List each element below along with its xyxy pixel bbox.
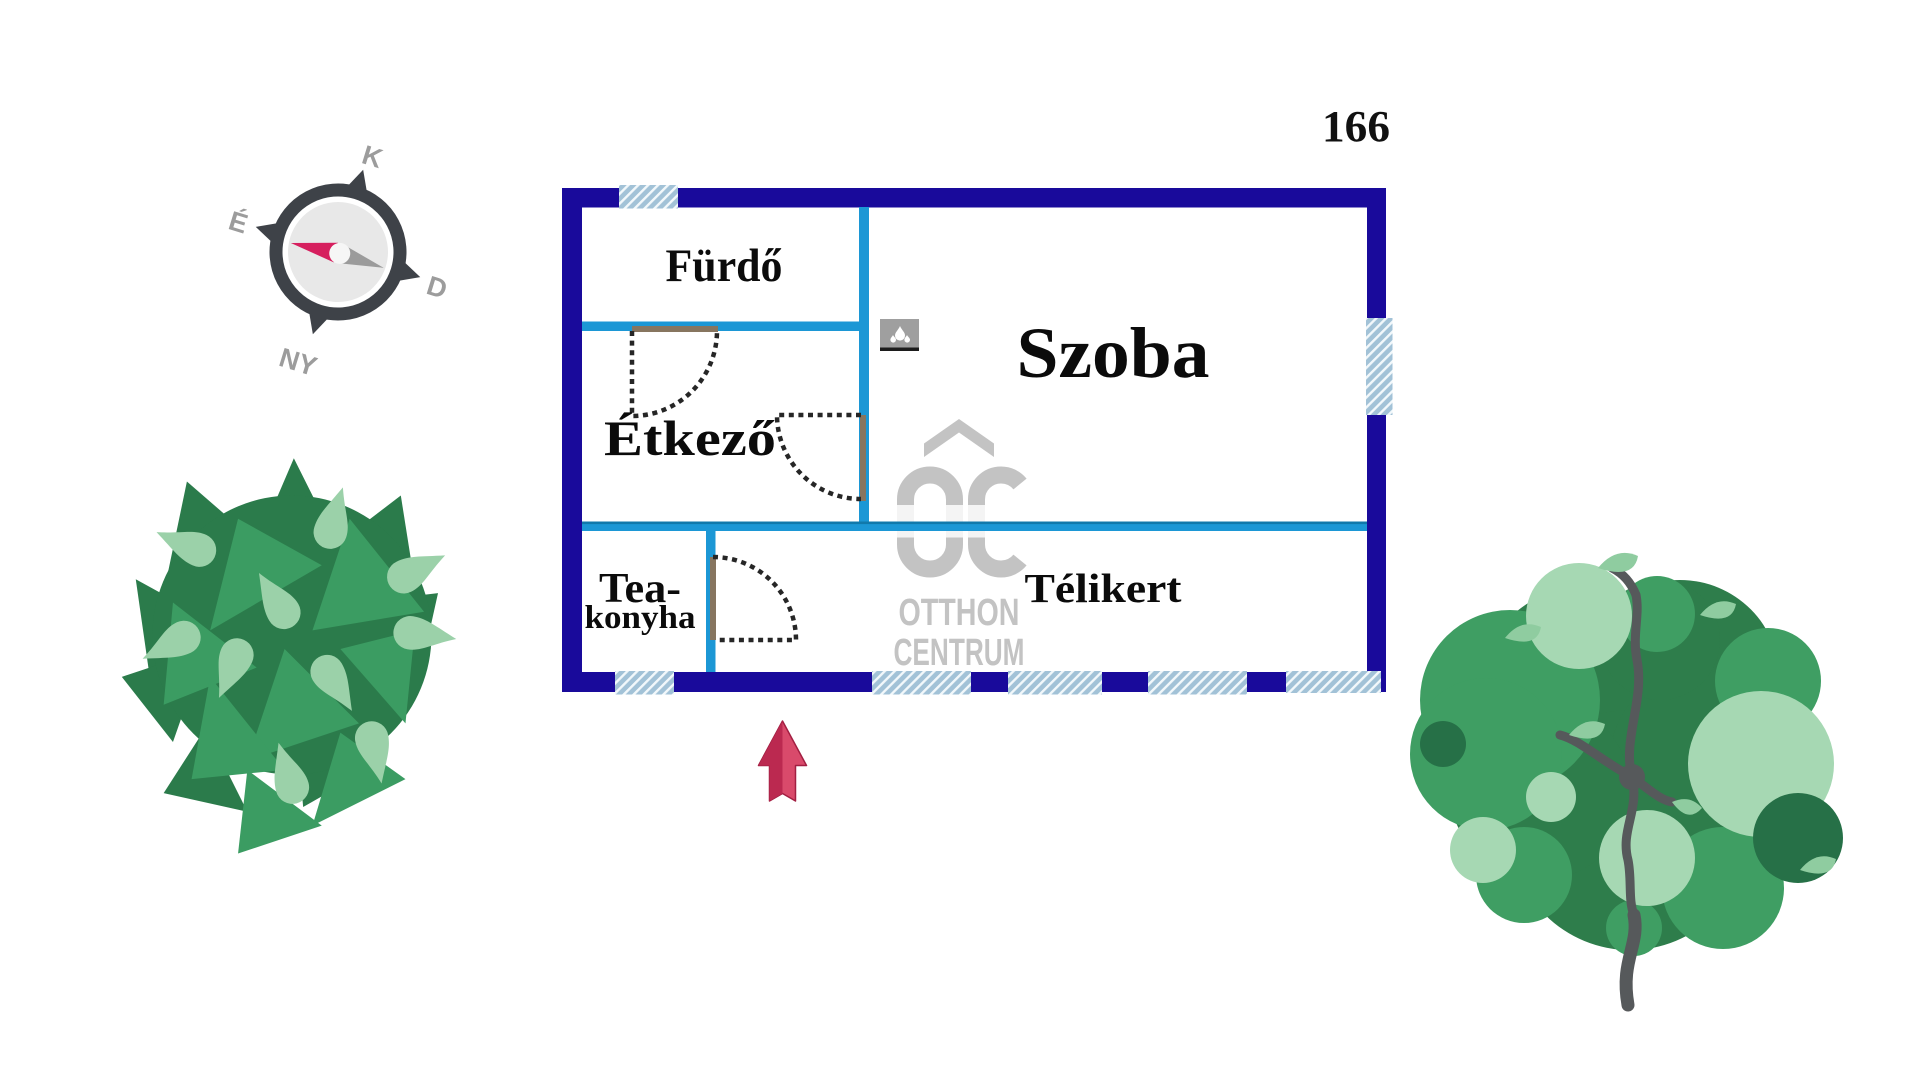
svg-text:OTTHON: OTTHON (899, 592, 1020, 634)
svg-text:konyha: konyha (585, 600, 696, 636)
svg-text:É: É (225, 205, 251, 240)
svg-text:166: 166 (1322, 102, 1390, 151)
svg-text:Télikert: Télikert (1025, 565, 1182, 611)
svg-text:K: K (359, 140, 387, 175)
svg-text:Fürdő: Fürdő (666, 240, 783, 292)
svg-text:D: D (423, 270, 450, 304)
svg-text:CENTRUM: CENTRUM (894, 632, 1025, 674)
svg-text:NY: NY (276, 342, 321, 382)
svg-text:Szoba: Szoba (1017, 313, 1210, 393)
svg-text:Étkező: Étkező (604, 410, 776, 466)
